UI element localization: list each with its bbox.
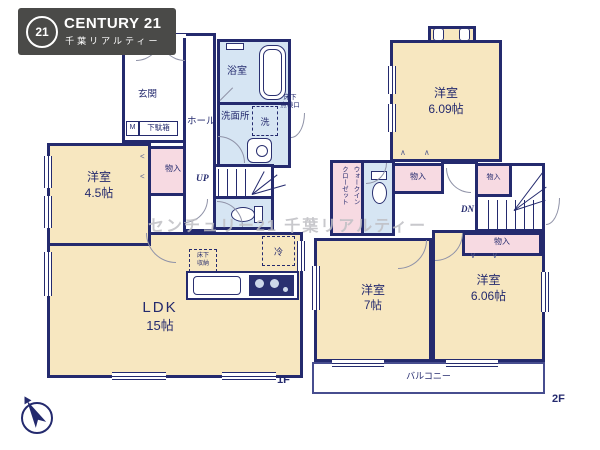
shoebox-label: 下駄箱 — [139, 121, 178, 136]
room45-label: 洋室 4.5帖 — [52, 170, 146, 201]
window — [541, 272, 549, 312]
bath-label: 浴室 — [227, 66, 247, 78]
hatch-door-arc — [291, 113, 305, 138]
storage-label-line1: 床下 — [197, 253, 209, 260]
fridge-label: 冷 — [274, 245, 283, 258]
stove-burner — [283, 287, 288, 292]
window — [44, 252, 52, 296]
storage-label-line2: 収納 — [197, 261, 209, 268]
closet45-label: 物入 — [148, 164, 198, 174]
stair-treads — [218, 169, 252, 196]
washbasin-faucet — [256, 145, 268, 157]
washer-space: 洗 — [252, 106, 278, 136]
closet-606-label: 物入 — [462, 237, 542, 247]
up-label: UP — [196, 174, 209, 185]
bath-counter — [226, 43, 244, 50]
washer-label: 洗 — [260, 115, 269, 128]
underfloor-hatch-label: 床下 点検口 — [276, 94, 304, 111]
window — [44, 156, 52, 188]
floorplan-canvas: 洗 床下 収納 冷 床下 点検口 < < — [0, 0, 600, 450]
kitchen-stove — [249, 275, 294, 296]
closet-door-panel — [459, 28, 470, 41]
stairs-door-arc — [546, 198, 560, 225]
closet-door-panel — [433, 28, 444, 41]
room606-label: 洋室 6.06帖 — [437, 273, 540, 304]
window — [44, 196, 52, 228]
shoebox-m-label: M — [126, 121, 139, 136]
floor1-label: 1F — [277, 374, 290, 387]
hall-door-arc-2f — [446, 168, 471, 193]
washbasin — [247, 138, 272, 163]
f1-kitchen-counter — [186, 271, 299, 300]
century21-logo: 21 CENTURY 21 千葉リアルティー — [18, 8, 176, 55]
balcony-label: バルコニー — [312, 371, 545, 383]
closet-door-mark: < — [140, 152, 145, 161]
window — [222, 372, 276, 380]
floor2-label: 2F — [552, 393, 565, 406]
dn-label: DN — [461, 204, 474, 214]
washroom-label: 洗面所 — [221, 112, 250, 123]
wall-segment — [441, 160, 478, 164]
closet-door-marks: ∨∨ — [470, 251, 514, 260]
underfloor-storage: 床下 収納 — [189, 249, 217, 272]
fridge-space: 冷 — [262, 236, 295, 266]
hall-label: ホール — [187, 117, 216, 128]
ldk-label: LDK 15帖 — [110, 298, 210, 334]
closet-stair-label: 物入 — [475, 173, 512, 182]
stove-burner — [270, 279, 279, 288]
window — [446, 359, 498, 367]
f1-stairs — [213, 164, 274, 199]
watermark: センチュリー21 千葉リアルティー — [148, 212, 427, 236]
logo-brand: CENTURY 21 — [64, 16, 162, 33]
stove-burner — [255, 279, 264, 288]
century21-seal-icon: 21 — [26, 16, 58, 48]
window — [112, 372, 166, 380]
toilet-bowl — [372, 182, 387, 204]
window — [332, 359, 384, 367]
closet-door-marks: ∧∧ — [400, 148, 448, 157]
closet-mid-label: 物入 — [392, 172, 444, 182]
compass-icon — [12, 392, 60, 440]
genkan-label: 玄関 — [138, 90, 157, 101]
room7-label: 洋室 7帖 — [318, 283, 428, 314]
window — [297, 241, 305, 271]
bathtub — [259, 45, 286, 100]
logo-subtitle: 千葉リアルティー — [65, 34, 160, 47]
kitchen-sink — [193, 276, 241, 295]
room609-label: 洋室 6.09帖 — [394, 86, 498, 117]
